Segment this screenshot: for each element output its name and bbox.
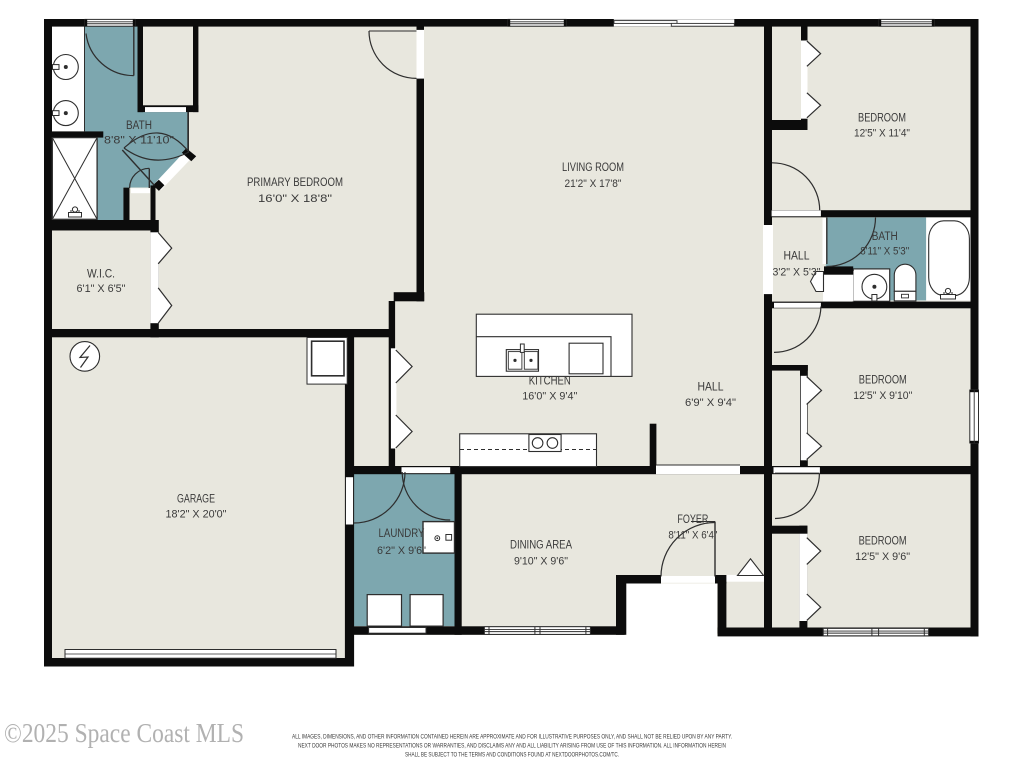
svg-text:8'11" X 5'3": 8'11" X 5'3" xyxy=(860,246,909,258)
svg-text:HALL: HALL xyxy=(698,382,725,394)
svg-text:PRIMARY BEDROOM: PRIMARY BEDROOM xyxy=(247,177,343,189)
svg-text:21'2" X 17'8": 21'2" X 17'8" xyxy=(565,178,622,190)
svg-text:SHALL BE SUBJECT TO THE TERMS: SHALL BE SUBJECT TO THE TERMS AND CONDIT… xyxy=(405,752,619,759)
svg-text:18'2" X 20'0": 18'2" X 20'0" xyxy=(166,509,227,521)
svg-text:12'5" X 9'10": 12'5" X 9'10" xyxy=(853,390,912,402)
svg-text:16'0" X 18'8": 16'0" X 18'8" xyxy=(258,193,332,205)
svg-text:FOYER: FOYER xyxy=(677,514,708,526)
svg-text:6'9" X 9'4": 6'9" X 9'4" xyxy=(685,397,736,409)
svg-text:ALL IMAGES, DIMENSIONS, AND OT: ALL IMAGES, DIMENSIONS, AND OTHER INFORM… xyxy=(292,734,732,741)
svg-text:9'10" X 9'6": 9'10" X 9'6" xyxy=(514,556,568,568)
svg-text:KITCHEN: KITCHEN xyxy=(529,376,571,388)
svg-text:12'5" X 9'6": 12'5" X 9'6" xyxy=(855,551,910,563)
svg-text:BATH: BATH xyxy=(126,120,152,132)
svg-text:NEXT DOOR PHOTOS MAKES NO REPR: NEXT DOOR PHOTOS MAKES NO REPRESENTATION… xyxy=(298,743,726,750)
svg-text:DINING AREA: DINING AREA xyxy=(510,540,572,552)
svg-text:12'5" X 11'4": 12'5" X 11'4" xyxy=(854,128,910,140)
svg-text:BATH: BATH xyxy=(872,231,898,243)
svg-text:6'1" X 6'5": 6'1" X 6'5" xyxy=(77,283,126,295)
svg-text:BEDROOM: BEDROOM xyxy=(859,536,907,548)
svg-text:BEDROOM: BEDROOM xyxy=(859,375,907,387)
svg-text:16'0" X 9'4": 16'0" X 9'4" xyxy=(522,391,577,403)
svg-text:6'2" X 9'6": 6'2" X 9'6" xyxy=(377,545,426,557)
svg-text:LIVING ROOM: LIVING ROOM xyxy=(562,162,624,174)
svg-text:GARAGE: GARAGE xyxy=(177,494,215,506)
svg-text:BEDROOM: BEDROOM xyxy=(858,113,906,125)
svg-text:HALL: HALL xyxy=(784,251,811,263)
svg-text:W.I.C.: W.I.C. xyxy=(87,269,115,281)
svg-text:3'2" X 5'3": 3'2" X 5'3" xyxy=(773,267,821,279)
svg-text:©2025 Space Coast MLS: ©2025 Space Coast MLS xyxy=(4,718,244,748)
svg-text:8'11" X 6'4": 8'11" X 6'4" xyxy=(668,530,717,542)
svg-text:8'8" X 11'10": 8'8" X 11'10" xyxy=(104,135,174,147)
svg-text:LAUNDRY: LAUNDRY xyxy=(379,528,425,540)
